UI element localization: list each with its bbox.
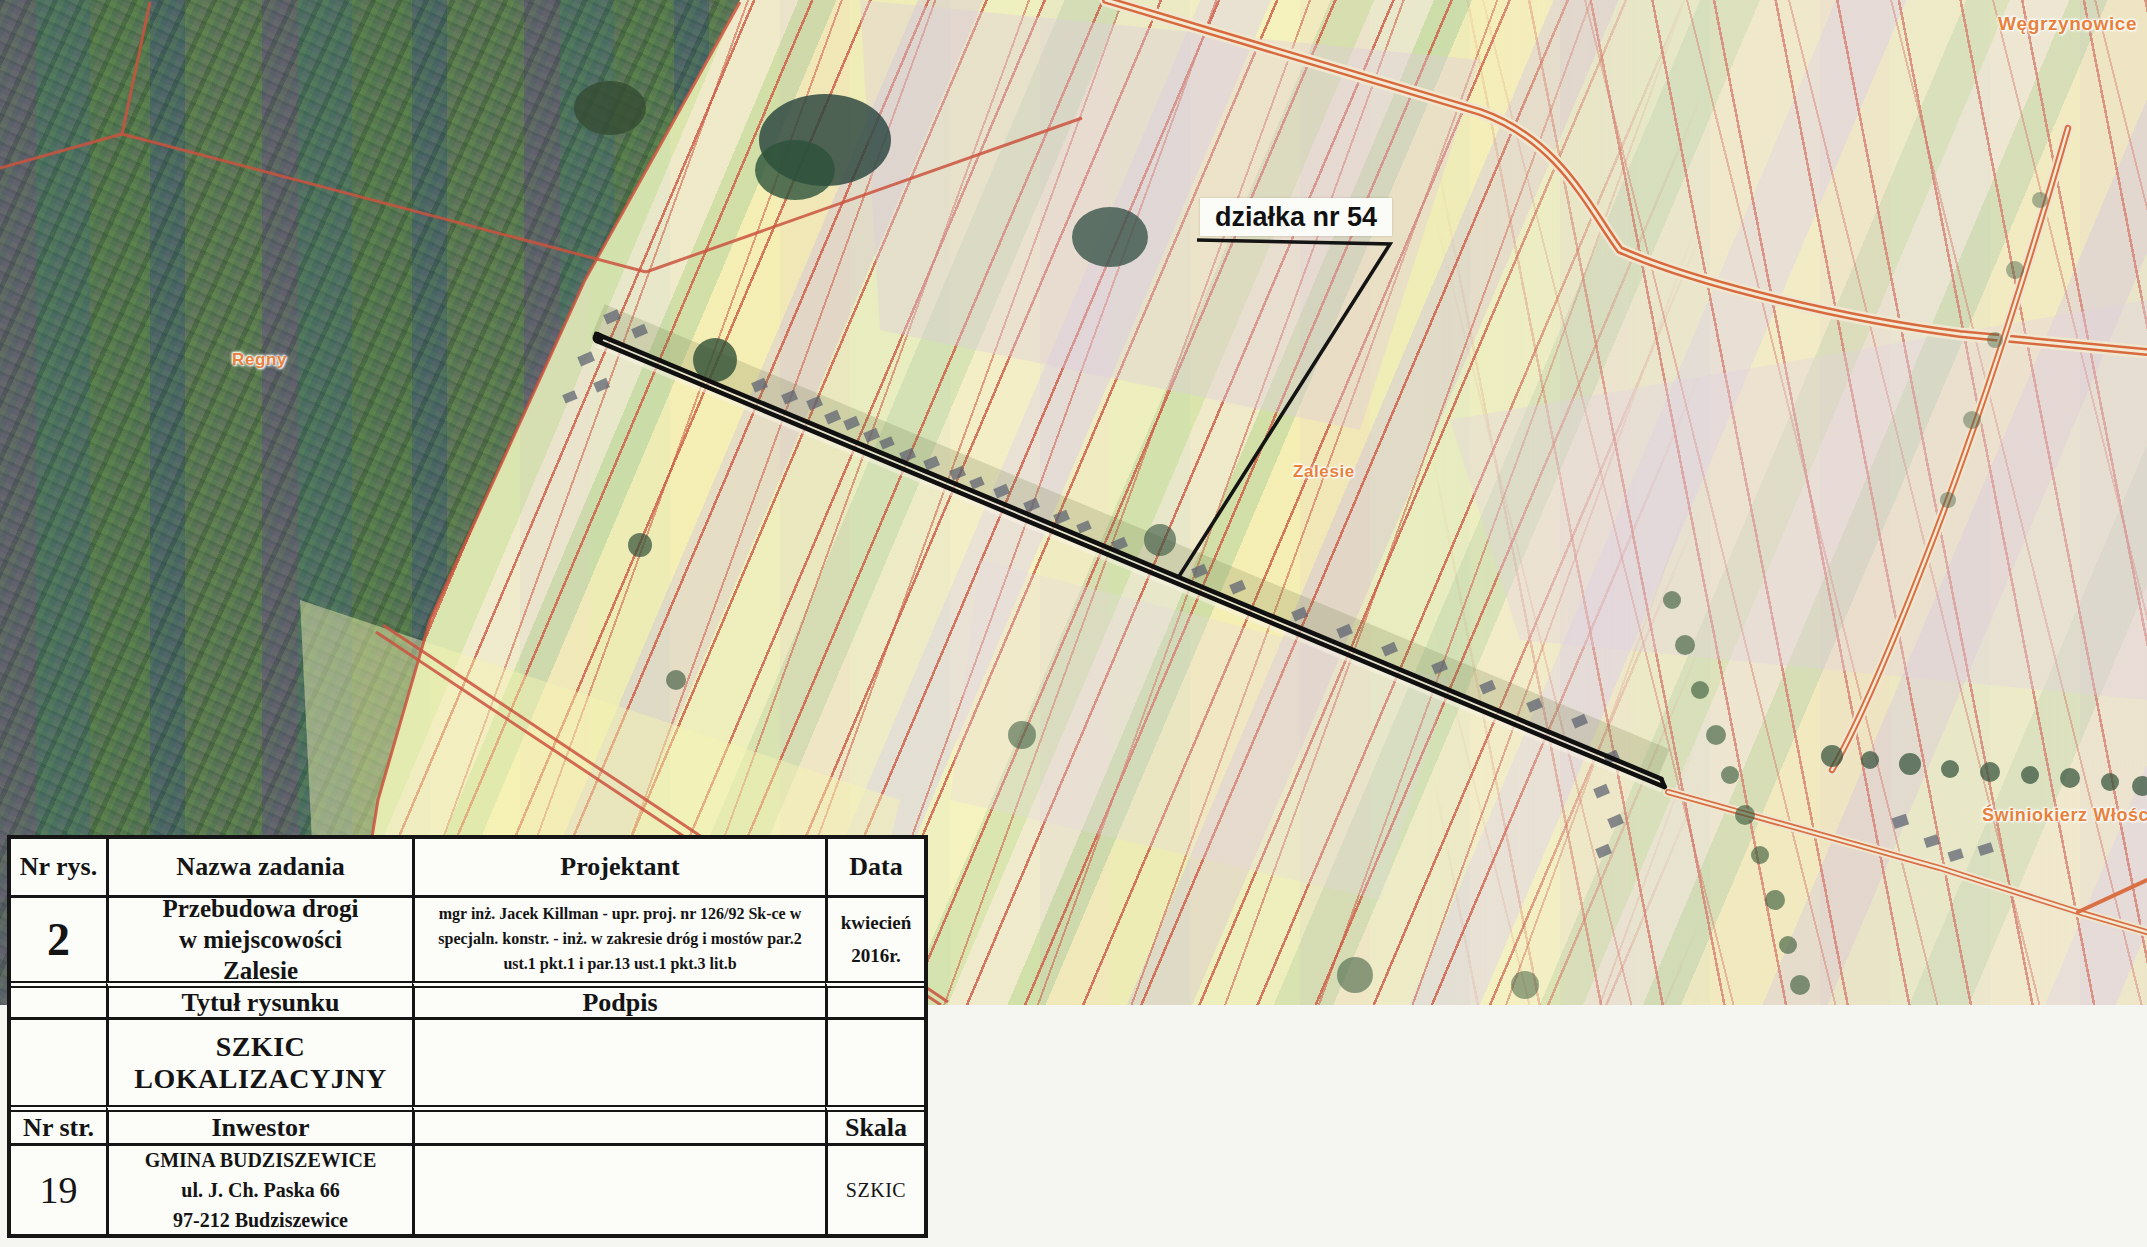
signature-cell-empty — [412, 1017, 825, 1105]
titleblock-empty-cell — [412, 1105, 825, 1143]
titleblock-empty-cell — [412, 1143, 825, 1234]
date-line1: kwiecień — [841, 907, 912, 939]
task-name-line1: Przebudowa drogi — [162, 895, 358, 924]
tree-band-bottom-right — [1821, 745, 2147, 796]
titleblock-empty-cell — [11, 1017, 106, 1105]
titleblock-header-nazwa-zadania: Nazwa zadania — [106, 839, 412, 895]
scale-value: SZKIC — [825, 1143, 924, 1234]
task-name-line2: w miejscowości — [179, 924, 342, 955]
titleblock-header-skala: Skala — [825, 1105, 924, 1143]
designer-credentials: mgr inż. Jacek Killman - upr. proj. nr 1… — [412, 895, 825, 981]
titleblock-header-podpis: Podpis — [412, 981, 825, 1017]
titleblock-header-nr-str: Nr str. — [11, 1105, 106, 1143]
parcel-annotation-label: działka nr 54 — [1200, 198, 1392, 236]
titleblock-header-nr-rys: Nr rys. — [11, 839, 106, 895]
drawing-number: 2 — [11, 895, 106, 981]
investor-line1: GMINA BUDZISZEWICE — [145, 1145, 377, 1175]
investor-line2: ul. J. Ch. Paska 66 — [181, 1175, 339, 1205]
titleblock-empty-cell — [825, 1017, 924, 1105]
titleblock-header-tytul-rysunku: Tytuł rysunku — [106, 981, 412, 1017]
investor-line3: 97-212 Budziszewice — [173, 1205, 348, 1234]
titleblock-header-projektant: Projektant — [412, 839, 825, 895]
investor: GMINA BUDZISZEWICE ul. J. Ch. Paska 66 9… — [106, 1143, 412, 1234]
place-label-swiniokierz: Świniokierz Włościań — [1982, 805, 2147, 826]
date: kwiecień 2016r. — [825, 895, 924, 981]
titleblock-empty-cell — [11, 981, 106, 1017]
titleblock-header-data: Data — [825, 839, 924, 895]
title-block: Nr rys. Nazwa zadania Projektant Data 2 … — [7, 835, 928, 1238]
task-name-line3: Zalesie — [223, 955, 298, 981]
place-label-zalesie: Zalesie — [1293, 462, 1355, 482]
place-label-regny: Regny — [232, 350, 287, 370]
place-label-wegrzynowice: Węgrzynowice — [1998, 13, 2137, 35]
titleblock-header-inwestor: Inwestor — [106, 1105, 412, 1143]
scanned-location-sketch-page: Regny Zalesie Węgrzynowice Świniokierz W… — [0, 0, 2147, 1247]
task-name: Przebudowa drogi w miejscowości Zalesie — [106, 895, 412, 981]
date-line2: 2016r. — [851, 940, 900, 972]
drawing-title: SZKIC LOKALIZACYJNY — [106, 1017, 412, 1105]
titleblock-empty-cell — [825, 981, 924, 1017]
page-number: 19 — [11, 1143, 106, 1234]
